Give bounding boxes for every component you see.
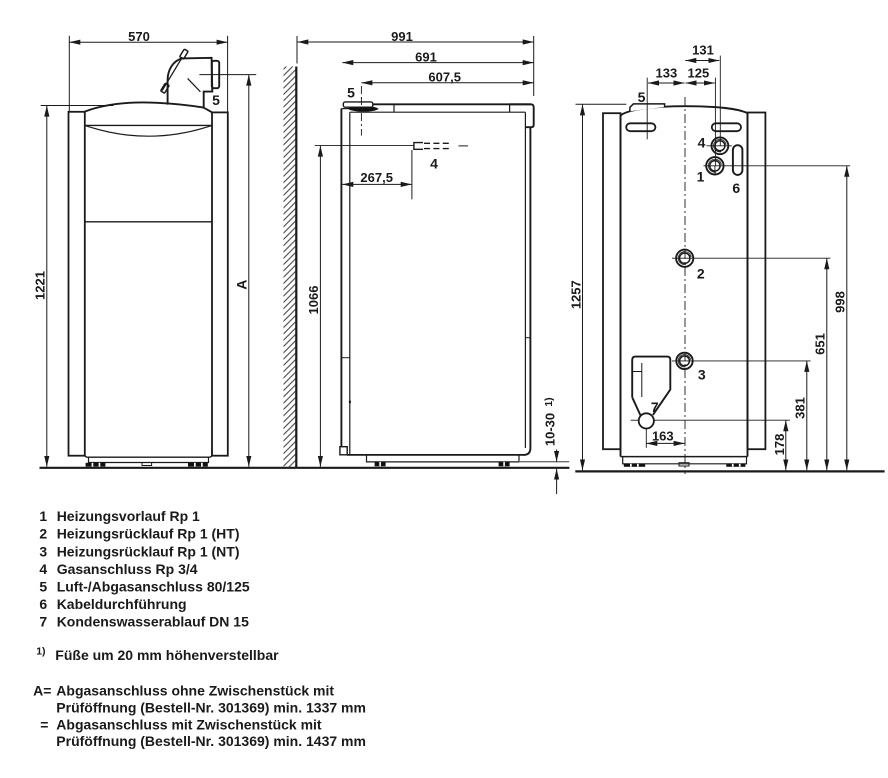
- svg-text:Kabeldurchführung: Kabeldurchführung: [57, 596, 187, 612]
- svg-text:267,5: 267,5: [360, 170, 393, 185]
- svg-text:5: 5: [347, 85, 355, 101]
- svg-text:Kondenswasserablauf DN 15: Kondenswasserablauf DN 15: [57, 613, 249, 629]
- svg-text:570: 570: [128, 29, 150, 44]
- svg-text:163: 163: [652, 428, 674, 443]
- svg-text:Prüföffnung (Bestell-Nr. 30136: Prüföffnung (Bestell-Nr. 301369) min. 13…: [56, 699, 366, 715]
- svg-text:131: 131: [692, 42, 714, 57]
- svg-text:133: 133: [656, 66, 678, 81]
- svg-text:4: 4: [39, 561, 47, 577]
- svg-text:1: 1: [697, 169, 705, 185]
- svg-text:1257: 1257: [568, 280, 583, 309]
- svg-text:Luft-/Abgasanschluss 80/125: Luft-/Abgasanschluss 80/125: [57, 578, 250, 594]
- svg-text:Füße um 20 mm höhenverstellbar: Füße um 20 mm höhenverstellbar: [55, 647, 279, 663]
- svg-text:1): 1): [543, 397, 555, 406]
- svg-text:1066: 1066: [306, 286, 321, 315]
- svg-text:691: 691: [415, 49, 437, 64]
- svg-text:1): 1): [36, 645, 45, 657]
- svg-text:3: 3: [698, 367, 706, 383]
- svg-text:A: A: [234, 280, 250, 290]
- svg-text:381: 381: [793, 397, 808, 419]
- svg-text:4: 4: [430, 156, 438, 172]
- svg-text:651: 651: [813, 333, 828, 355]
- svg-text:6: 6: [39, 596, 47, 612]
- svg-text:125: 125: [688, 66, 710, 81]
- svg-text:=: =: [40, 716, 48, 732]
- svg-text:10-30: 10-30: [542, 413, 557, 446]
- svg-text:1: 1: [39, 508, 47, 524]
- svg-text:1221: 1221: [32, 271, 47, 300]
- svg-text:607,5: 607,5: [428, 70, 461, 85]
- svg-text:Abgasanschluss mit Zwischenstü: Abgasanschluss mit Zwischenstück mit: [56, 716, 322, 732]
- svg-text:Heizungsrücklauf Rp 1 (NT): Heizungsrücklauf Rp 1 (NT): [57, 543, 240, 559]
- svg-text:998: 998: [833, 291, 848, 313]
- svg-text:3: 3: [39, 543, 47, 559]
- svg-text:7: 7: [39, 613, 47, 629]
- svg-text:6: 6: [732, 180, 740, 196]
- svg-text:5: 5: [638, 89, 646, 105]
- svg-text:991: 991: [391, 29, 413, 44]
- svg-text:A=: A=: [33, 682, 51, 698]
- svg-text:178: 178: [772, 434, 787, 456]
- svg-text:4: 4: [698, 135, 706, 151]
- svg-text:Abgasanschluss ohne Zwischenst: Abgasanschluss ohne Zwischenstück mit: [56, 682, 334, 698]
- svg-text:Heizungsvorlauf Rp 1: Heizungsvorlauf Rp 1: [57, 508, 200, 524]
- svg-text:Heizungsrücklauf Rp 1 (HT): Heizungsrücklauf Rp 1 (HT): [57, 525, 240, 541]
- svg-text:Prüföffnung (Bestell-Nr. 30136: Prüföffnung (Bestell-Nr. 301369) min. 14…: [56, 733, 366, 749]
- svg-text:2: 2: [39, 525, 47, 541]
- svg-text:Gasanschluss Rp 3/4: Gasanschluss Rp 3/4: [57, 561, 198, 577]
- svg-text:2: 2: [697, 265, 705, 281]
- svg-text:5: 5: [39, 578, 47, 594]
- svg-text:7: 7: [651, 399, 659, 415]
- svg-text:5: 5: [212, 92, 220, 108]
